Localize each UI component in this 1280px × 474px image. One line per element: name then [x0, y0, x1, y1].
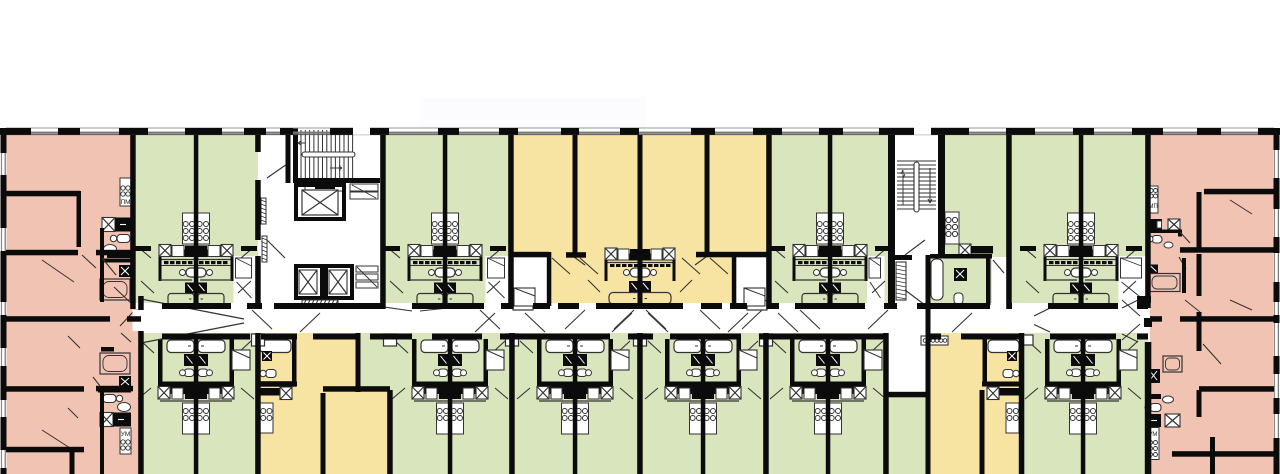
svg-text:ПМ: ПМ [120, 199, 130, 206]
svg-text:УМ: УМ [121, 431, 131, 438]
